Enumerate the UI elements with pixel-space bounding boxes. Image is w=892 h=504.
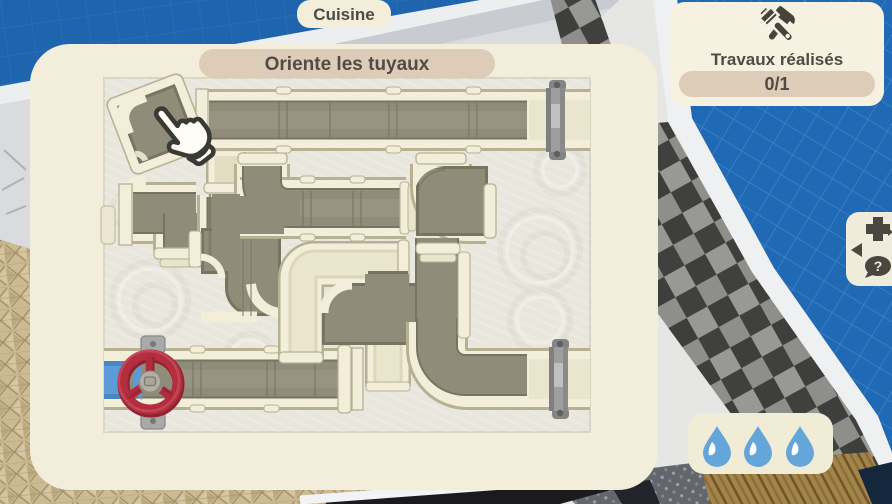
svg-text:0/1: 0/1: [764, 74, 789, 94]
svg-text:Oriente les tuyaux: Oriente les tuyaux: [265, 54, 430, 75]
svg-text:Cuisine: Cuisine: [313, 5, 374, 24]
svg-text:Travaux réalisés: Travaux réalisés: [711, 50, 843, 69]
svg-text:?: ?: [874, 258, 883, 274]
